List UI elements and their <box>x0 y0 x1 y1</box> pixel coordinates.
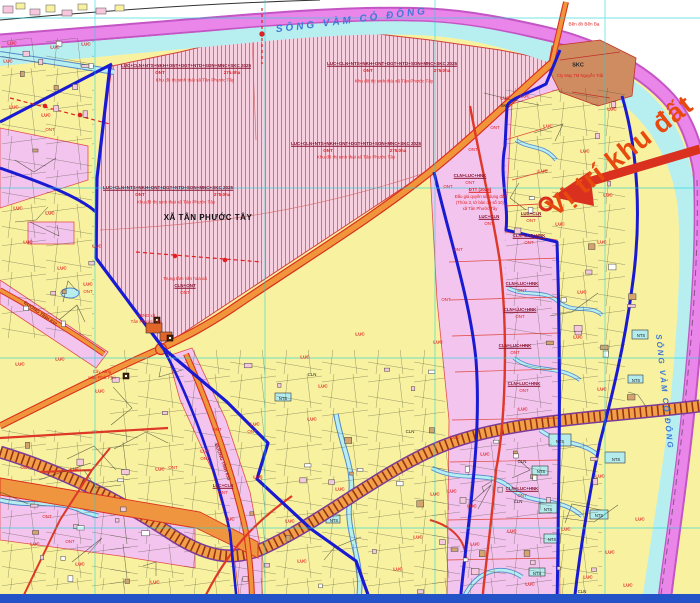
land-use-planning-map[interactable]: SÔNG VÀM CỎ ĐÔNGSÔNG VÀM CỎ ĐÔNGVị trí k… <box>0 0 700 603</box>
map-graphics <box>0 0 700 603</box>
map-bottom-border <box>0 594 700 603</box>
